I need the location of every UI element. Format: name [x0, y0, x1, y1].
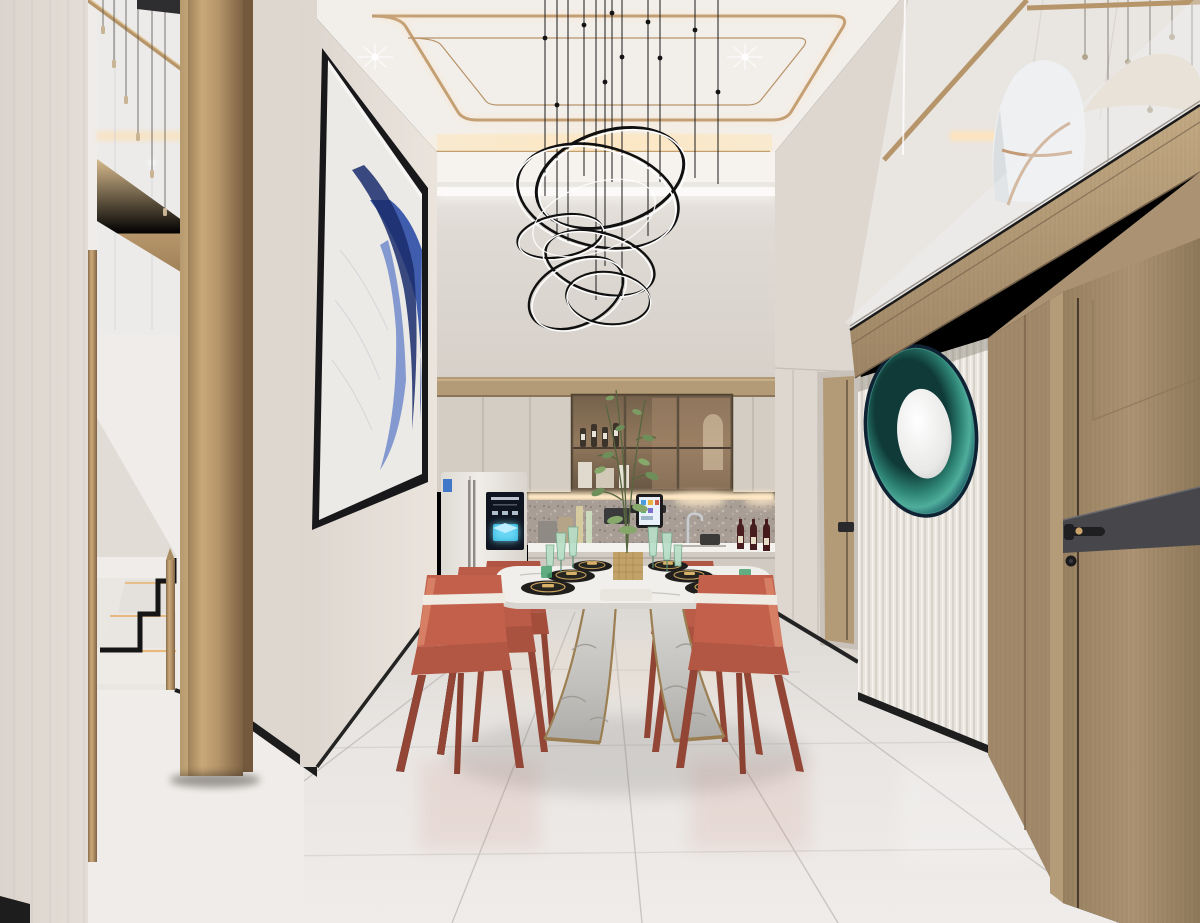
gold-column-side — [243, 0, 253, 772]
gold-column-front — [180, 0, 243, 776]
screen-subtitle — [493, 504, 517, 506]
screen-stats — [492, 511, 518, 515]
stair-riser — [97, 648, 178, 684]
chair-stripe — [423, 593, 506, 605]
setting — [547, 570, 595, 583]
chair-seat — [411, 642, 512, 675]
green-tumbler — [541, 566, 552, 578]
door-handle — [838, 522, 854, 532]
energy-label — [443, 479, 452, 492]
column-highlight — [180, 0, 188, 776]
setting — [648, 561, 688, 572]
gold-mesh-vase — [613, 552, 643, 580]
setting — [521, 581, 575, 596]
dish-rack — [700, 534, 720, 545]
wall-light-glow — [437, 187, 775, 201]
chair-seat — [688, 642, 789, 675]
chair-stripe — [694, 593, 777, 605]
kitchen-wall — [437, 152, 780, 606]
screen-title — [491, 497, 519, 500]
lock-keyhole — [1069, 559, 1073, 563]
gold-corner-trim — [88, 250, 97, 862]
stair-riser — [118, 580, 174, 613]
gold-column — [170, 0, 260, 787]
gold-stair-post — [166, 560, 175, 690]
fluted-wall-panel — [855, 338, 988, 753]
fridge-screen — [486, 492, 524, 550]
rendered-interior-scene — [0, 0, 1200, 923]
crown-molding — [437, 152, 775, 182]
recessed-wood-door — [818, 370, 858, 650]
fridge-handle — [473, 480, 475, 570]
column-shadow — [170, 773, 260, 787]
left-foreground-pillar — [0, 0, 88, 923]
upper-wall — [437, 182, 775, 382]
splash-spot-glow — [674, 493, 726, 507]
handle-gold-ring — [1075, 527, 1082, 534]
setting — [572, 561, 612, 572]
fridge-handle — [468, 480, 470, 570]
entry-door-area — [988, 172, 1200, 923]
door-frame — [1050, 292, 1063, 903]
wood-entry-door — [1063, 238, 1200, 923]
door-leaf — [823, 376, 854, 644]
table-runner — [600, 589, 652, 601]
screen-glowing-box — [493, 523, 518, 541]
splash-spot-glow — [744, 494, 780, 506]
counter-wine-bottles — [737, 519, 770, 551]
